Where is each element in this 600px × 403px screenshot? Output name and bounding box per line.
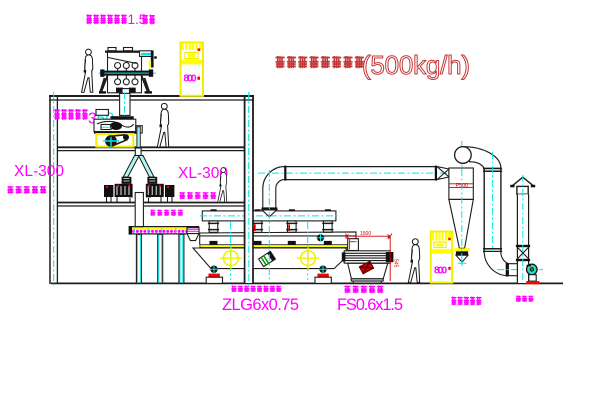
svg-text:FS0.6x1.5: FS0.6x1.5 — [337, 296, 403, 314]
svg-text:800: 800 — [184, 74, 197, 85]
svg-text:800: 800 — [434, 266, 447, 277]
svg-text:545: 545 — [393, 259, 399, 268]
svg-text:(500kg/h): (500kg/h) — [362, 50, 470, 80]
svg-text:1500: 1500 — [360, 231, 371, 237]
svg-text:XL-300: XL-300 — [14, 163, 64, 180]
svg-text:ZLG6x0.75: ZLG6x0.75 — [222, 296, 299, 314]
